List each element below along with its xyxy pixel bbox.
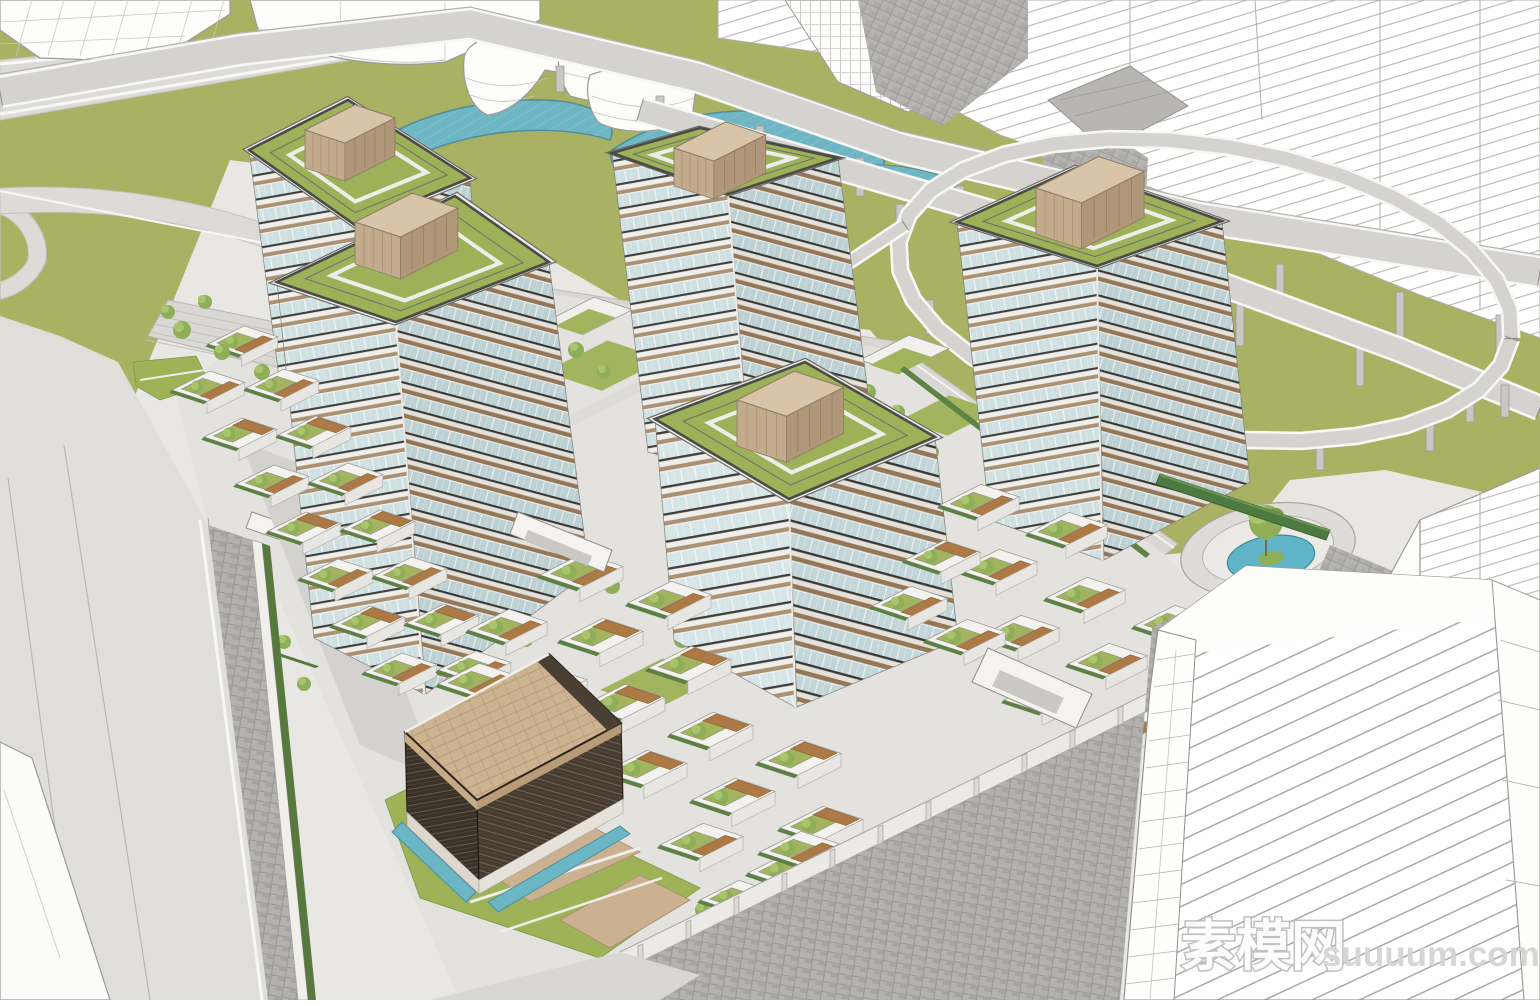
svg-text:suuuum.com: suuuum.com: [1322, 935, 1540, 974]
